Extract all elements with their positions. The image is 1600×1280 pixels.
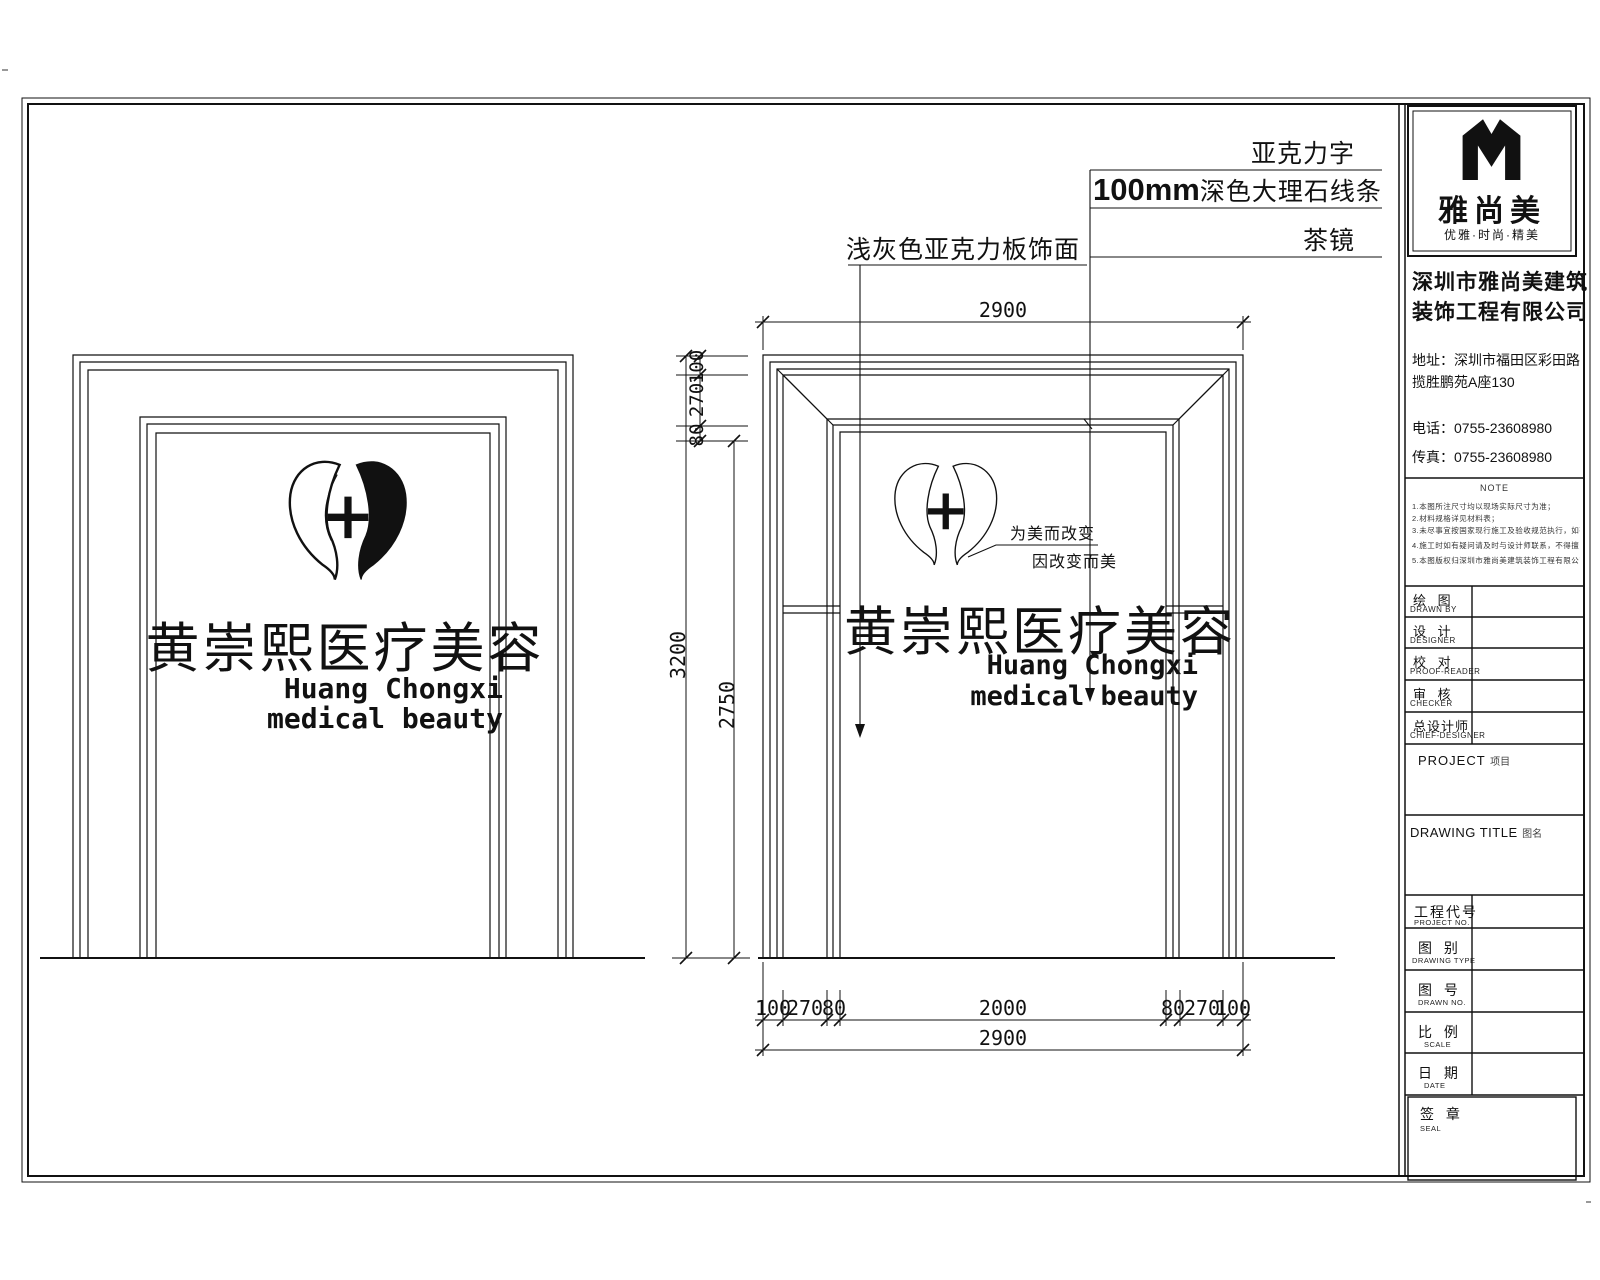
notes-title: NOTE [1405, 483, 1584, 493]
label-acrylic-panel: 浅灰色亚克力板饰面 [846, 230, 1080, 266]
drawing-title-label-en: DRAWING TITLE [1410, 825, 1518, 840]
signage-slogan1: 为美而改变 [1010, 520, 1095, 544]
dim-seg-270-left: 270 [785, 996, 825, 1020]
field-drawing-type-en: DRAWING TYPE [1412, 956, 1476, 965]
field-scale-cn: 比 例 [1418, 1022, 1462, 1042]
field-date-cn: 日 期 [1418, 1063, 1462, 1083]
project-label-en: PROJECT [1418, 753, 1486, 768]
notes-line-5: 5.本图版权归深圳市雅尚美建筑装饰工程有限公司所有，翻版必究。 [1412, 555, 1580, 566]
field-date-en: DATE [1424, 1081, 1445, 1090]
clinic-logo-view2 [895, 464, 997, 565]
notes-line-1: 1.本图所注尺寸均以现场实际尺寸为准； [1412, 501, 1580, 512]
row-checker-en: CHECKER [1410, 699, 1453, 708]
project-label-cn: 项目 [1490, 757, 1510, 768]
notes-line-4: 4.施工时如有疑问请及时与设计师联系，不得擅自更改图纸内容； [1412, 540, 1580, 551]
drawing-title-label-cn: 图名 [1522, 829, 1542, 840]
label-marble-text: 深色大理石线条 [1200, 179, 1382, 206]
brand-m-logo-icon [1463, 119, 1521, 180]
label-marble-line: 100mm深色大理石线条 [1093, 172, 1382, 208]
label-tea-mirror: 茶镜 [1250, 221, 1355, 257]
dim-bottom-total: 2900 [963, 1026, 1043, 1050]
row-chief-designer-en: CHIEF-DESIGNER [1410, 731, 1485, 740]
signage-title-en1-view1: Huang Chongxi [200, 672, 503, 705]
seal-label-cn: 签 章 [1420, 1104, 1464, 1124]
notes-line-2: 2.材料规格详见材料表； [1412, 513, 1580, 524]
dim-top-total: 2900 [963, 298, 1043, 322]
project-cell-label: PROJECT 项目 [1418, 752, 1510, 770]
company-phone: 电话：0755-23608980 [1412, 418, 1552, 438]
dim-stack-80: 80 [686, 400, 708, 470]
company-fax: 传真：0755-23608980 [1412, 447, 1552, 467]
row-proofreader-en: PROOF-READER [1410, 667, 1480, 676]
label-marble-size: 100mm [1093, 172, 1200, 207]
clinic-logo-view1 [290, 462, 406, 580]
dim-height-total: 3200 [666, 615, 690, 695]
signage-slogan2: 因改变而美 [1032, 548, 1117, 572]
field-drawing-type-cn: 图 别 [1418, 938, 1462, 958]
seal-label-en: SEAL [1420, 1124, 1441, 1133]
field-drawing-no-cn: 图 号 [1418, 980, 1462, 1000]
drawing-title-cell-label: DRAWING TITLE 图名 [1410, 824, 1542, 842]
signage-title-en2-view1: medical beauty [200, 702, 503, 735]
row-drawn-by-en: DRAWN BY [1410, 605, 1457, 614]
company-name-line1: 深圳市雅尚美建筑 [1412, 266, 1588, 296]
notes-line-3: 3.未尽事宜按国家现行施工及验收规范执行，如有修改以设计师确认为准； [1412, 525, 1580, 536]
field-drawing-no-en: DRAWN NO. [1418, 998, 1466, 1007]
signage-title-en2-view2: medical beauty [900, 681, 1198, 712]
brand-tagline: 优雅·时尚·精美 [1412, 226, 1572, 243]
dim-seg-80-left: 80 [820, 996, 848, 1020]
field-project-no-en: PROJECT NO. [1414, 918, 1470, 927]
field-scale-en: SCALE [1424, 1040, 1451, 1049]
label-acrylic-letters: 亚克力字 [1170, 134, 1355, 170]
brand-name: 雅尚美 [1412, 186, 1572, 230]
dim-opening-height: 2750 [715, 665, 739, 745]
company-address-line1: 地址：深圳市福田区彩田路 [1412, 350, 1580, 370]
row-designer-en: DESIGNER [1410, 636, 1456, 645]
dim-seg-100-right: 100 [1213, 996, 1253, 1020]
signage-title-en1-view2: Huang Chongxi [900, 650, 1198, 681]
company-name-line2: 装饰工程有限公司 [1412, 296, 1588, 326]
dim-seg-2000: 2000 [973, 996, 1033, 1020]
cad-sheet: 亚克力字 100mm深色大理石线条 茶镜 浅灰色亚克力板饰面 2900 3200… [0, 0, 1600, 1280]
company-address-line2: 揽胜鹏苑A座130 [1412, 372, 1515, 392]
